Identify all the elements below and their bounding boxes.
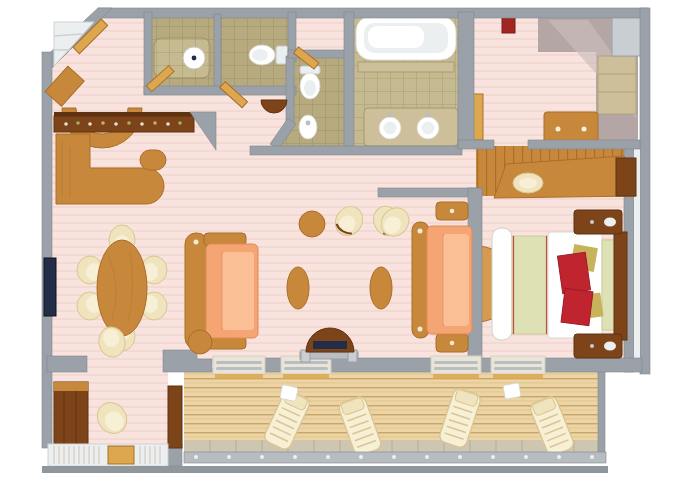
coffee-table [287,267,309,309]
faucet [426,113,430,117]
nightstand [574,210,622,234]
hull-edge [42,466,608,473]
outer-wall-left [42,52,52,448]
red-pillow [561,288,593,325]
wall [265,358,281,372]
bedroom-armoire [616,158,636,196]
deck-side-table [503,383,521,400]
closet-shelf-unit [598,56,636,114]
dining-table [97,240,147,336]
tub-step [358,62,454,72]
coffee-table [370,267,392,309]
deck-edge-band [184,440,604,452]
room-master-bathroom [350,12,460,150]
bar-back-counter [54,116,194,132]
wall [545,358,642,372]
faucet [388,113,392,117]
king-bed [492,228,627,340]
wall [458,12,474,148]
bar-mirror [54,112,194,116]
round-stool [188,330,212,354]
room-guest-wc [218,14,290,90]
tv [44,258,56,316]
bed-head-pillows [602,240,615,330]
wall [47,356,87,372]
red-pillow [557,252,590,294]
outer-wall-right [640,8,650,374]
sliding-door-track [213,356,265,379]
nook-cabinet [54,382,88,446]
wall [286,56,294,122]
headboard [614,232,627,340]
suite-floor-plan: 3D top-down floor plan of a suite with b… [0,0,680,486]
wall [250,146,462,155]
bed-foot-runner [512,236,548,334]
closet-red-accent [502,16,515,33]
wall [344,12,354,152]
wall [528,140,640,149]
wall [378,188,482,197]
deck-side-table [280,384,299,401]
double-sink-vanity [364,108,458,146]
bed-footboard [492,228,512,340]
floor-plan-page: 3D top-down floor plan of a suite with b… [0,0,680,486]
sliding-door-track [491,356,545,379]
bidet [299,115,317,139]
outer-wall-top [98,8,648,18]
wall [214,14,221,88]
nightstand [574,334,622,358]
wall [331,358,431,372]
sliding-door-track [431,356,481,379]
balcony-right-divider [598,368,605,456]
round-table [299,211,325,237]
nook-windows [48,444,168,466]
wall [481,358,491,372]
bar-counter-end [140,150,166,170]
nook-wood-partition [168,386,182,448]
room-bedroom [492,156,636,358]
room-balcony [184,368,605,457]
wall [458,140,494,149]
